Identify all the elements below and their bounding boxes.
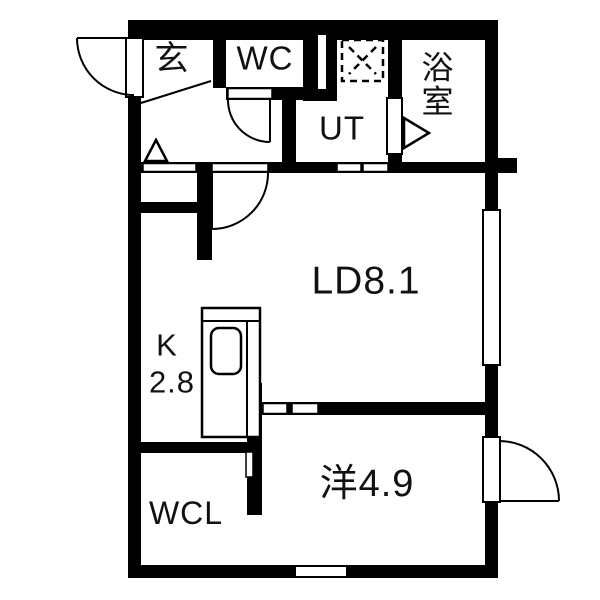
wcl-bar-notch: [246, 452, 253, 477]
ut-door-opening-right: [363, 164, 388, 172]
wall-corridor-ut: [282, 100, 296, 162]
bath-door-triangle-icon: [404, 118, 429, 148]
room-label-kitchen-size: 2.8: [149, 367, 195, 400]
room-label-living-dining: LD8.1: [311, 262, 420, 303]
pipe-space-slot: [317, 34, 327, 90]
washing-machine-symbol: [342, 40, 383, 81]
kitchen-sink: [211, 328, 241, 374]
room-label-wcl: WCL: [149, 497, 223, 531]
hall-k-opening: [143, 164, 196, 172]
wall-ut-bath-upper: [388, 40, 402, 98]
room-label-bathroom-char2: 室: [421, 85, 454, 119]
bottom-window: [295, 566, 347, 577]
room-label-ut: UT: [319, 112, 365, 147]
floor-plan-drawing: [0, 0, 600, 600]
room-label-genkan: 玄: [155, 42, 190, 78]
room-label-wc: WC: [237, 42, 294, 77]
western-door-swing: [499, 441, 559, 501]
western-sliding-door-left: [263, 404, 287, 414]
wall-genkan-wc: [213, 40, 226, 88]
kitchen-counter: [202, 308, 260, 437]
room-label-western-room: 洋4.9: [320, 465, 415, 505]
ut-door-opening-left: [337, 164, 361, 172]
wall-ut-bath-lower: [388, 154, 402, 164]
wall-nub-right: [485, 158, 517, 173]
genkan-triangle-marker: [145, 140, 167, 161]
wall-wcl-top: [141, 442, 247, 453]
wc-door-swing: [228, 100, 270, 142]
washing-machine-box: [342, 40, 383, 81]
floor-plan: 玄 WC UT 浴 室 LD8.1 K 2.8 WCL 洋4.9: [0, 0, 600, 600]
entrance-door-opening: [126, 38, 143, 97]
western-sliding-door-right: [292, 404, 318, 414]
ld-window: [483, 210, 500, 365]
wall-ld-vertical: [197, 162, 212, 260]
genkan-step-line: [141, 81, 211, 103]
wall-hall-k-nub: [141, 202, 197, 213]
room-label-kitchen-letter: K: [156, 330, 178, 363]
ld-door-opening: [212, 164, 268, 172]
outer-wall-left: [128, 20, 141, 578]
ld-door-swing: [212, 173, 268, 229]
western-door-opening: [483, 437, 500, 502]
room-label-bathroom: 浴 室: [421, 51, 454, 118]
wc-door-opening: [228, 89, 272, 99]
room-label-bathroom-char1: 浴: [421, 51, 454, 85]
bath-door-opening: [387, 98, 402, 154]
